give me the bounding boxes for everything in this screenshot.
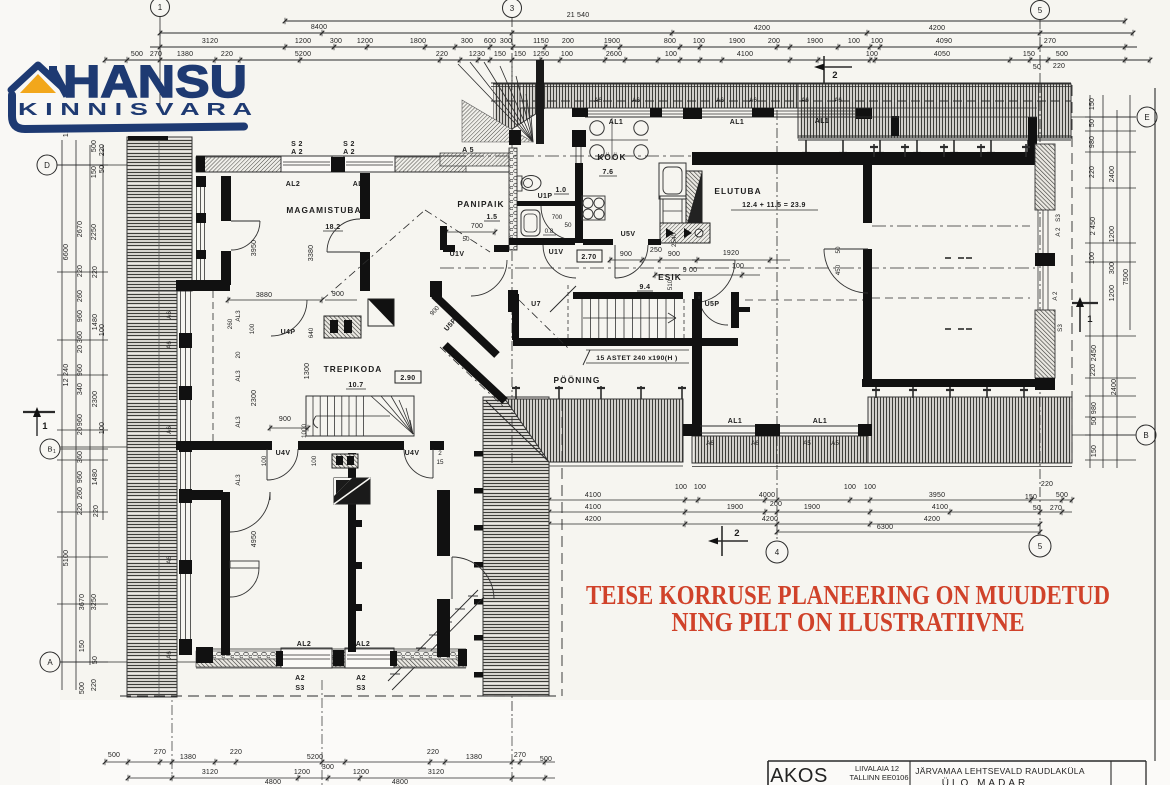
svg-text:AL1: AL1 xyxy=(813,418,827,425)
svg-text:200: 200 xyxy=(770,501,782,508)
svg-text:B: B xyxy=(47,445,52,454)
svg-text:E: E xyxy=(1144,113,1149,122)
svg-text:3: 3 xyxy=(510,4,515,13)
svg-text:960: 960 xyxy=(77,414,84,426)
svg-text:A6: A6 xyxy=(594,97,602,104)
svg-text:U7: U7 xyxy=(531,301,541,308)
svg-text:A 5: A 5 xyxy=(462,147,474,154)
svg-text:ESIK: ESIK xyxy=(658,272,682,282)
svg-text:300: 300 xyxy=(330,38,342,45)
svg-text:5: 5 xyxy=(1038,542,1043,551)
svg-text:U5V: U5V xyxy=(621,231,636,238)
svg-text:500: 500 xyxy=(108,752,120,759)
svg-text:360: 360 xyxy=(77,451,84,463)
svg-text:150: 150 xyxy=(1023,51,1035,58)
svg-text:B: B xyxy=(1143,431,1148,440)
svg-text:980: 980 xyxy=(1091,402,1098,414)
svg-text:S3: S3 xyxy=(1055,214,1062,222)
svg-text:4200: 4200 xyxy=(929,25,945,32)
svg-text:2: 2 xyxy=(734,528,739,539)
svg-text:2250: 2250 xyxy=(91,224,98,240)
svg-text:50: 50 xyxy=(462,236,470,243)
svg-text:200: 200 xyxy=(562,38,574,45)
svg-text:5200: 5200 xyxy=(307,754,323,761)
svg-text:4100: 4100 xyxy=(932,504,948,511)
svg-text:2 450: 2 450 xyxy=(1090,217,1097,236)
svg-text:1920: 1920 xyxy=(723,250,739,257)
svg-text:220: 220 xyxy=(77,503,84,515)
svg-text:TALLINN EE0106: TALLINN EE0106 xyxy=(849,773,908,782)
svg-text:A6: A6 xyxy=(834,97,842,104)
svg-text:260: 260 xyxy=(77,487,84,499)
svg-text:100: 100 xyxy=(848,38,860,45)
svg-text:A6: A6 xyxy=(749,97,757,104)
svg-text:S 2: S 2 xyxy=(343,141,355,148)
svg-text:NING PILT ON ILUSTRATIIVNE: NING PILT ON ILUSTRATIIVNE xyxy=(672,607,1025,637)
svg-text:220: 220 xyxy=(1053,63,1065,70)
svg-text:1: 1 xyxy=(53,449,56,455)
svg-text:640: 640 xyxy=(308,327,315,338)
svg-text:300: 300 xyxy=(322,764,334,771)
svg-text:TEISE KORRUSE PLANEERING ON M: TEISE KORRUSE PLANEERING ON MUUDETUD xyxy=(586,580,1110,610)
svg-text:1200: 1200 xyxy=(353,769,369,776)
svg-text:20: 20 xyxy=(77,345,84,353)
svg-text:900: 900 xyxy=(620,251,632,258)
svg-text:50: 50 xyxy=(564,222,572,229)
svg-text:200: 200 xyxy=(768,38,780,45)
svg-text:20: 20 xyxy=(235,351,242,359)
svg-text:300: 300 xyxy=(1109,262,1116,274)
svg-text:AL3: AL3 xyxy=(235,416,242,428)
svg-text:360: 360 xyxy=(77,331,84,343)
svg-text:50: 50 xyxy=(1033,505,1041,512)
svg-text:2400: 2400 xyxy=(1111,379,1118,395)
svg-text:5100: 5100 xyxy=(63,550,70,566)
svg-text:4050: 4050 xyxy=(934,51,950,58)
svg-text:2450: 2450 xyxy=(1091,345,1098,361)
svg-text:500: 500 xyxy=(1056,51,1068,58)
svg-text:4090: 4090 xyxy=(936,38,952,45)
svg-text:2400: 2400 xyxy=(1109,166,1116,182)
svg-text:A6: A6 xyxy=(166,341,173,349)
svg-text:A6: A6 xyxy=(632,97,640,104)
svg-text:1: 1 xyxy=(42,421,48,432)
svg-text:4: 4 xyxy=(775,548,780,557)
svg-text:ELUTUBA: ELUTUBA xyxy=(714,186,761,196)
svg-text:18.2: 18.2 xyxy=(325,224,340,231)
svg-text:100: 100 xyxy=(844,484,856,491)
svg-text:S3: S3 xyxy=(295,685,304,692)
svg-text:220: 220 xyxy=(1090,364,1097,376)
svg-text:1800: 1800 xyxy=(410,38,426,45)
svg-text:MAGAMISTUBA: MAGAMISTUBA xyxy=(286,205,361,215)
svg-text:2: 2 xyxy=(832,70,837,81)
svg-text:1: 1 xyxy=(1087,314,1093,325)
svg-text:AL3: AL3 xyxy=(235,310,242,322)
svg-text:220: 220 xyxy=(230,749,242,756)
svg-text:270: 270 xyxy=(514,752,526,759)
svg-text:A 2: A 2 xyxy=(1055,227,1062,237)
svg-text:900: 900 xyxy=(332,291,344,298)
svg-text:150: 150 xyxy=(1089,98,1096,110)
svg-text:4200: 4200 xyxy=(762,516,778,523)
svg-text:100: 100 xyxy=(871,38,883,45)
svg-text:AL2: AL2 xyxy=(297,641,311,648)
svg-text:100: 100 xyxy=(561,51,573,58)
svg-text:100: 100 xyxy=(694,484,706,491)
svg-text:340: 340 xyxy=(77,383,84,395)
svg-text:1300: 1300 xyxy=(304,363,311,379)
svg-text:1480: 1480 xyxy=(92,314,99,330)
svg-text:5: 5 xyxy=(1038,6,1043,15)
svg-text:A6: A6 xyxy=(166,311,173,319)
svg-text:500: 500 xyxy=(79,682,86,694)
svg-text:1900: 1900 xyxy=(727,504,743,511)
svg-text:7.6: 7.6 xyxy=(603,169,614,176)
svg-text:D: D xyxy=(44,161,50,170)
svg-text:980: 980 xyxy=(1089,136,1096,148)
svg-text:4800: 4800 xyxy=(265,779,281,785)
svg-text:A2: A2 xyxy=(356,675,366,682)
svg-text:270: 270 xyxy=(154,749,166,756)
svg-text:100: 100 xyxy=(864,484,876,491)
svg-text:220: 220 xyxy=(77,265,84,277)
svg-text:3250: 3250 xyxy=(91,594,98,610)
svg-text:100: 100 xyxy=(693,38,705,45)
svg-text:15 ASTET 240 x190(H ): 15 ASTET 240 x190(H ) xyxy=(596,355,677,362)
svg-text:100: 100 xyxy=(311,455,318,466)
svg-text:A6: A6 xyxy=(801,97,809,104)
svg-text:U4V: U4V xyxy=(276,450,291,457)
svg-text:8400: 8400 xyxy=(311,24,327,31)
svg-text:220: 220 xyxy=(427,749,439,756)
svg-text:220: 220 xyxy=(99,144,106,156)
svg-text:260: 260 xyxy=(227,318,234,329)
svg-text:AL1: AL1 xyxy=(730,119,744,126)
svg-text:1150: 1150 xyxy=(533,38,549,45)
svg-text:0.8: 0.8 xyxy=(545,228,554,235)
svg-text:3120: 3120 xyxy=(202,38,218,45)
svg-text:JÄRVAMAA LEHTSEVALD RAUDLAKÜ: JÄRVAMAA LEHTSEVALD RAUDLAKÜLA xyxy=(915,766,1085,776)
svg-text:A 2: A 2 xyxy=(1052,291,1059,301)
svg-text:AL1: AL1 xyxy=(815,118,829,125)
svg-text:3380: 3380 xyxy=(308,245,315,261)
svg-text:12.4 + 11.5 = 23.9: 12.4 + 11.5 = 23.9 xyxy=(742,202,806,209)
svg-text:2.90: 2.90 xyxy=(400,375,415,382)
svg-text:ÜLO MADAR: ÜLO MADAR xyxy=(942,777,1028,785)
svg-text:1900: 1900 xyxy=(807,38,823,45)
svg-text:50: 50 xyxy=(835,246,842,254)
svg-text:220: 220 xyxy=(93,505,100,517)
svg-text:3950: 3950 xyxy=(929,492,945,499)
svg-text:4200: 4200 xyxy=(924,516,940,523)
svg-text:6300: 6300 xyxy=(877,524,893,531)
svg-text:1.5: 1.5 xyxy=(487,214,498,221)
svg-text:AL1: AL1 xyxy=(609,119,623,126)
svg-text:4100: 4100 xyxy=(737,51,753,58)
svg-text:100: 100 xyxy=(261,455,268,466)
svg-text:100: 100 xyxy=(1089,252,1096,264)
svg-text:7500: 7500 xyxy=(1123,269,1130,285)
svg-text:220: 220 xyxy=(436,51,448,58)
svg-text:700: 700 xyxy=(552,214,563,221)
svg-text:A6: A6 xyxy=(706,440,714,447)
svg-text:800: 800 xyxy=(664,38,676,45)
svg-text:U1V: U1V xyxy=(450,251,465,258)
svg-text:1200: 1200 xyxy=(1109,285,1116,301)
svg-text:1000: 1000 xyxy=(301,424,308,439)
svg-text:1250: 1250 xyxy=(533,51,549,58)
svg-text:S3: S3 xyxy=(356,685,365,692)
svg-text:U4V: U4V xyxy=(405,450,420,457)
svg-text:U1P: U1P xyxy=(538,193,553,200)
svg-text:1200: 1200 xyxy=(1109,226,1116,242)
svg-text:150: 150 xyxy=(79,640,86,652)
svg-text:500: 500 xyxy=(1056,492,1068,499)
svg-text:3120: 3120 xyxy=(202,769,218,776)
svg-text:4800: 4800 xyxy=(392,779,408,785)
svg-text:A6: A6 xyxy=(716,97,724,104)
svg-text:2300: 2300 xyxy=(92,391,99,407)
svg-text:U5P: U5P xyxy=(705,301,720,308)
svg-text:12 240: 12 240 xyxy=(63,364,70,387)
svg-text:TREPIKODA: TREPIKODA xyxy=(324,364,383,374)
svg-text:260: 260 xyxy=(77,290,84,302)
svg-text:1900: 1900 xyxy=(604,38,620,45)
svg-text:3670: 3670 xyxy=(79,594,86,610)
svg-text:5200: 5200 xyxy=(295,51,311,58)
svg-text:100: 100 xyxy=(675,484,687,491)
svg-text:450: 450 xyxy=(835,264,842,275)
svg-text:100: 100 xyxy=(866,51,878,58)
svg-text:AL3: AL3 xyxy=(235,474,242,486)
svg-text:10.7: 10.7 xyxy=(348,382,363,389)
svg-text:150: 150 xyxy=(494,51,506,58)
svg-text:1200: 1200 xyxy=(294,769,310,776)
svg-text:960: 960 xyxy=(77,310,84,322)
svg-text:4200: 4200 xyxy=(585,516,601,523)
svg-text:960: 960 xyxy=(77,364,84,376)
svg-text:PANIPAIK: PANIPAIK xyxy=(457,199,504,209)
svg-text:2670: 2670 xyxy=(77,221,84,237)
svg-text:A6: A6 xyxy=(166,651,173,659)
svg-text:A6: A6 xyxy=(166,426,173,434)
svg-text:15: 15 xyxy=(436,459,444,466)
svg-text:4100: 4100 xyxy=(585,492,601,499)
svg-text:1: 1 xyxy=(158,3,163,12)
svg-text:1200: 1200 xyxy=(295,38,311,45)
svg-text:AL3: AL3 xyxy=(235,370,242,382)
svg-text:1900: 1900 xyxy=(804,504,820,511)
svg-text:300: 300 xyxy=(461,38,473,45)
svg-text:220: 220 xyxy=(92,266,99,278)
svg-text:1200: 1200 xyxy=(357,38,373,45)
svg-text:U1V: U1V xyxy=(549,249,564,256)
svg-text:960: 960 xyxy=(77,471,84,483)
svg-text:3120: 3120 xyxy=(428,769,444,776)
svg-text:6600: 6600 xyxy=(63,244,70,260)
svg-text:250: 250 xyxy=(650,247,662,254)
svg-text:U4P: U4P xyxy=(281,329,296,336)
svg-text:100: 100 xyxy=(99,324,106,336)
svg-text:2.70: 2.70 xyxy=(581,254,596,261)
svg-text:1380: 1380 xyxy=(180,754,196,761)
svg-text:500: 500 xyxy=(540,756,552,763)
svg-text:A6: A6 xyxy=(166,556,173,564)
svg-text:3950: 3950 xyxy=(251,240,258,256)
svg-text:50: 50 xyxy=(1091,417,1098,425)
svg-text:1480: 1480 xyxy=(92,469,99,485)
svg-text:220: 220 xyxy=(91,679,98,691)
svg-text:K I N N I S V A R A: K I N N I S V A R A xyxy=(18,99,253,119)
svg-text:4100: 4100 xyxy=(585,504,601,511)
svg-text:A 2: A 2 xyxy=(343,149,355,156)
svg-text:700: 700 xyxy=(471,223,483,230)
svg-text:A6: A6 xyxy=(751,440,759,447)
svg-text:A 2: A 2 xyxy=(291,149,303,156)
svg-text:150: 150 xyxy=(514,51,526,58)
svg-text:4950: 4950 xyxy=(251,531,258,547)
svg-text:900: 900 xyxy=(279,416,291,423)
svg-text:2: 2 xyxy=(438,450,442,457)
svg-text:1.0: 1.0 xyxy=(556,187,567,194)
svg-text:220: 220 xyxy=(1041,481,1053,488)
svg-text:600: 600 xyxy=(484,38,496,45)
svg-text:100: 100 xyxy=(249,323,256,334)
svg-text:1230: 1230 xyxy=(469,51,485,58)
svg-text:A5: A5 xyxy=(803,440,811,447)
svg-text:4200: 4200 xyxy=(754,25,770,32)
svg-text:150: 150 xyxy=(91,166,98,178)
svg-text:150: 150 xyxy=(1091,445,1098,457)
svg-text:1380: 1380 xyxy=(466,754,482,761)
svg-text:50: 50 xyxy=(1089,119,1096,127)
svg-text:A2: A2 xyxy=(295,675,305,682)
svg-text:AL2: AL2 xyxy=(356,641,370,648)
svg-text:LIIVALAIA 12: LIIVALAIA 12 xyxy=(855,764,899,773)
svg-text:100: 100 xyxy=(99,422,106,434)
svg-text:2540: 2540 xyxy=(671,233,678,248)
svg-text:A: A xyxy=(47,658,53,667)
svg-text:900: 900 xyxy=(668,251,680,258)
svg-text:20: 20 xyxy=(77,427,84,435)
svg-text:50: 50 xyxy=(92,656,99,664)
svg-text:S3: S3 xyxy=(1057,324,1064,332)
svg-text:AKOS: AKOS xyxy=(770,765,828,785)
svg-text:2600: 2600 xyxy=(606,51,622,58)
svg-text:AL1: AL1 xyxy=(728,418,742,425)
svg-text:150: 150 xyxy=(1025,494,1037,501)
svg-text:3880: 3880 xyxy=(256,292,272,299)
svg-text:300: 300 xyxy=(500,38,512,45)
svg-text:KÖÖK: KÖÖK xyxy=(597,152,626,162)
svg-text:50: 50 xyxy=(99,165,106,173)
svg-text:A5: A5 xyxy=(831,440,839,447)
svg-text:500: 500 xyxy=(91,140,98,152)
svg-text:S 2: S 2 xyxy=(291,141,303,148)
svg-text:21 540: 21 540 xyxy=(567,12,590,19)
svg-text:9.4: 9.4 xyxy=(640,284,651,291)
svg-text:2300: 2300 xyxy=(251,390,258,406)
svg-text:220: 220 xyxy=(1089,166,1096,178)
svg-text:100: 100 xyxy=(665,51,677,58)
svg-text:4000: 4000 xyxy=(759,492,775,499)
svg-text:1900: 1900 xyxy=(729,38,745,45)
svg-text:AL2: AL2 xyxy=(286,181,300,188)
svg-text:270: 270 xyxy=(1044,38,1056,45)
svg-text:270: 270 xyxy=(1050,505,1062,512)
svg-text:PÖÖNING: PÖÖNING xyxy=(554,375,601,385)
